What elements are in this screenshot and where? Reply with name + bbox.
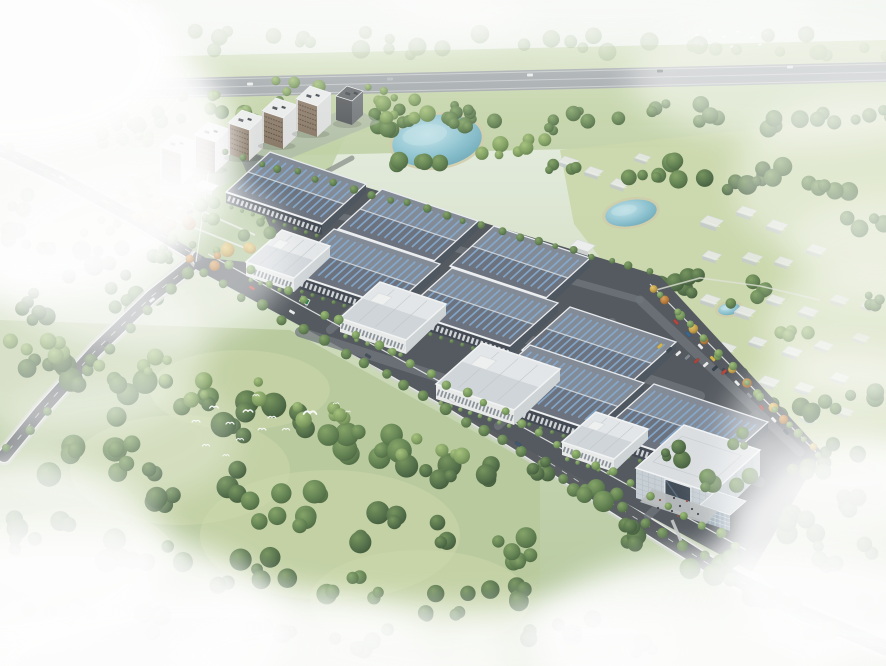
aerial-rendering bbox=[0, 0, 886, 666]
scene-svg bbox=[0, 0, 886, 666]
layer-fog bbox=[0, 0, 886, 666]
